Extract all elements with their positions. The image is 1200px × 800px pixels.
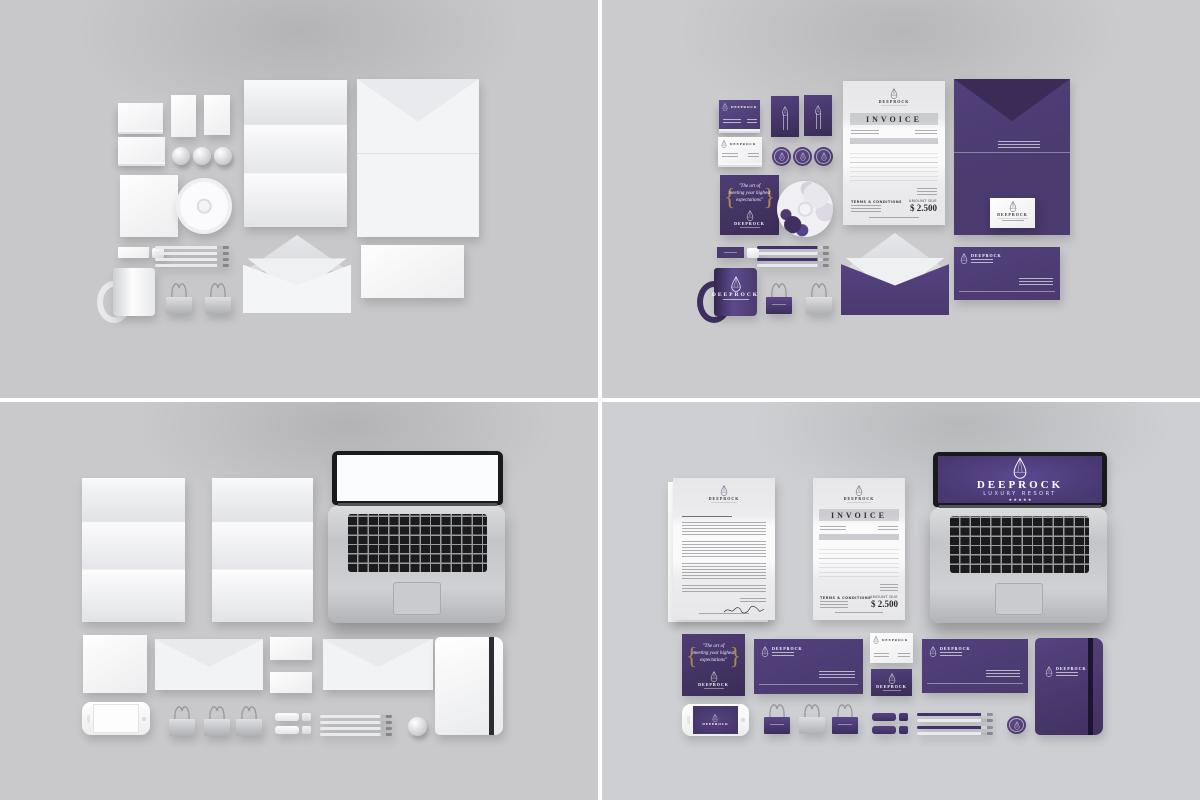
text-lines [820, 601, 848, 610]
gem-logo-icon [800, 152, 806, 161]
envelope-label: DEEPROCK [990, 198, 1035, 228]
binder-clip [166, 297, 192, 314]
binder-clip [832, 717, 858, 734]
brand-lockup: DEEPROCK LUXURY RESORT ★ ★ ★ ★ ★ [977, 457, 1063, 502]
mug [113, 268, 155, 316]
business-card [270, 637, 312, 660]
envelope-flap [323, 639, 433, 667]
laptop-display [337, 455, 498, 501]
dl-envelope: DEEPROCK [954, 247, 1060, 300]
divider-line [740, 227, 760, 228]
brand-lockup: DEEPROCK [990, 201, 1035, 223]
envelope-seam [954, 152, 1070, 153]
usb-cap [302, 726, 311, 734]
phone-earpiece [687, 716, 690, 724]
address-lines [1019, 278, 1053, 287]
usb-cap [302, 713, 311, 721]
dl-envelope: DEEPROCK [922, 639, 1028, 693]
text-lines [940, 652, 962, 657]
cd-disc [176, 178, 232, 234]
square-card [83, 635, 147, 693]
divider-line [959, 291, 1054, 292]
gem-logo-icon [960, 253, 968, 264]
brand-tagline: "The art ofmeeting your highestexpectati… [727, 183, 772, 204]
gem-logo-icon [720, 485, 728, 496]
binder-clip-wire-icon [168, 701, 196, 721]
brand-name: DEEPROCK [876, 684, 907, 689]
gem-logo-icon [1009, 201, 1017, 212]
divider-line [883, 690, 901, 691]
brand-name: DEEPROCK [940, 646, 971, 651]
round-sticker [814, 147, 833, 166]
terms-label: TERMS & CONDITIONS [851, 200, 902, 204]
vertical-text-line [820, 113, 821, 129]
notebook-band [1088, 638, 1093, 735]
pen [155, 246, 229, 249]
business-card-stack [118, 137, 165, 162]
binder-clip [204, 719, 230, 736]
pen [155, 252, 229, 255]
binder-clip [806, 297, 832, 314]
usb-cap [899, 713, 908, 721]
catalogue-envelope [357, 79, 479, 237]
invoice-total: $ 2.500 [871, 599, 898, 609]
gem-logo-icon [929, 646, 937, 657]
open-envelope [243, 235, 351, 313]
laptop-trackpad [995, 583, 1043, 615]
binder-clip-wire-icon [805, 278, 833, 298]
text-lines [851, 205, 881, 214]
dl-envelope [323, 639, 433, 690]
binder-clip [799, 717, 825, 734]
phone-home-button [741, 718, 745, 722]
sphere [193, 147, 211, 165]
brand-lockup: DEEPROCK [702, 714, 728, 726]
text-lines [748, 153, 759, 159]
phone [82, 702, 150, 735]
text-lines [722, 153, 738, 159]
business-card-stack: DEEPROCK [718, 137, 762, 163]
dl-envelope: DEEPROCK [754, 639, 863, 694]
envelope-seam [357, 153, 479, 154]
gem-logo-icon [1012, 457, 1028, 479]
invoice-total: $ 2.500 [910, 203, 937, 213]
quote-card: { } "The art ofmeeting your highestexpec… [720, 175, 779, 235]
brand-lockup: DEEPROCK [721, 140, 756, 148]
laptop-keyboard [950, 516, 1089, 573]
mug: DEEPROCK [714, 268, 757, 316]
brand-name: DEEPROCK [882, 638, 908, 642]
invoice-table-rows [850, 149, 938, 185]
gem-logo-icon [1045, 666, 1053, 677]
invoice-sheet: DEEPROCK INVOICE TERMS & CONDITIONS AMOU… [813, 478, 905, 620]
cd-sleeve [120, 175, 178, 237]
laptop-keyboard [348, 514, 487, 572]
brand-lockup: DEEPROCK [871, 673, 912, 691]
pen [917, 719, 993, 722]
cd-disc [777, 181, 833, 237]
brand-name: DEEPROCK [772, 646, 803, 651]
text-lines [915, 130, 937, 135]
brand-name: DEEPROCK [698, 682, 729, 687]
gem-logo-icon [761, 646, 769, 657]
brand-lockup: DEEPROCK [720, 210, 779, 228]
logo-card: DEEPROCK [871, 669, 912, 696]
text-lines [1002, 220, 1024, 223]
dl-envelope [155, 639, 263, 690]
envelope-flap [357, 79, 479, 122]
notebook [435, 637, 503, 735]
address-lines [819, 671, 855, 680]
paragraph-lines [682, 522, 766, 537]
laptop-trackpad [393, 582, 441, 615]
brand-name: DEEPROCK [712, 292, 759, 298]
invoice-subtotals [917, 188, 937, 197]
quote-card: { } "The art ofmeeting your highestexpec… [682, 634, 745, 696]
laptop-body [328, 506, 505, 623]
usb-cap [899, 726, 908, 734]
footer-line [835, 612, 883, 615]
sphere [172, 147, 190, 165]
text-lines [723, 299, 749, 302]
laptop-screen [332, 451, 503, 505]
brand-stars: ★ ★ ★ ★ ★ [1008, 497, 1031, 502]
brand-name: DEEPROCK [1056, 666, 1087, 671]
gem-logo-icon [873, 636, 879, 644]
pen [320, 733, 392, 736]
vertical-card [771, 96, 799, 137]
laptop-body [930, 508, 1107, 623]
divider-line [759, 684, 857, 685]
text-lines [838, 724, 852, 725]
gem-logo-icon [855, 485, 863, 496]
invoice-title: INVOICE [819, 509, 898, 521]
phone-screen [93, 704, 139, 733]
notebook: DEEPROCK [1035, 638, 1103, 735]
invoice-bill-row [819, 534, 898, 540]
mockup-grid: DEEPROCK DEEPROCK { } [0, 0, 1200, 800]
divider-line [847, 502, 871, 503]
binder-clip [205, 297, 231, 314]
invoice-bill-row [850, 138, 938, 144]
brand-name: DEEPROCK [702, 722, 728, 726]
cd-hub [197, 199, 212, 214]
text-lines [747, 119, 757, 125]
gem-logo-icon [890, 88, 898, 99]
divider-line [881, 105, 907, 106]
brand-name: DEEPROCK [709, 496, 740, 501]
gem-logo-icon [730, 276, 742, 292]
binder-clip [766, 297, 792, 314]
vertical-text-line [783, 114, 784, 130]
binder-clip-wire-icon [235, 701, 263, 721]
brand-tagline: "The art ofmeeting your highestexpectati… [690, 643, 738, 664]
pen [757, 252, 829, 255]
envelope-flap [954, 79, 1070, 121]
brand-name: DEEPROCK [977, 479, 1063, 491]
binder-clip-wire-icon [204, 278, 232, 298]
pen [320, 721, 392, 724]
footer-line [699, 613, 749, 616]
paragraph-lines [682, 541, 766, 559]
pen [757, 258, 829, 261]
usb-drive [872, 713, 896, 721]
text-lines [772, 304, 786, 305]
pen [917, 726, 993, 729]
text-lines [724, 252, 737, 253]
invoice-title: INVOICE [850, 113, 938, 125]
brand-name: DEEPROCK [879, 99, 910, 104]
brand-name: DEEPROCK [971, 253, 1002, 258]
photo-branded-stationery-laptop: DEEPROCK DEEPROCK INVOICE [602, 402, 1200, 800]
brand-lockup: DEEPROCK [714, 276, 757, 302]
footer-line [869, 217, 919, 220]
pen [320, 715, 392, 718]
divider-line [711, 502, 737, 503]
pen [917, 732, 993, 735]
gem-logo-icon [888, 673, 896, 684]
salutation-line [682, 516, 732, 519]
phone-earpiece [87, 715, 90, 723]
vertical-text-line [816, 113, 817, 129]
brand-lockup: DEEPROCK [1045, 666, 1087, 677]
text-lines [820, 526, 846, 531]
brand-lockup: DEEPROCK [673, 485, 775, 503]
gem-logo-icon [779, 152, 785, 161]
binder-clip [764, 717, 790, 734]
letterhead-blank [212, 478, 313, 622]
usb-drive [275, 713, 299, 721]
sphere [214, 147, 232, 165]
gem-logo-icon [710, 671, 718, 682]
brand-lockup: DEEPROCK [682, 671, 745, 689]
address-lines [986, 670, 1020, 679]
business-card [270, 672, 312, 693]
round-sticker [1007, 716, 1026, 734]
divider-line [998, 218, 1028, 219]
sphere [408, 717, 427, 736]
gem-logo-icon [746, 210, 754, 221]
text-lines [898, 653, 910, 659]
brand-lockup: DEEPROCK [761, 646, 803, 657]
gem-logo-icon [712, 714, 718, 722]
open-envelope [841, 233, 949, 315]
pen [320, 727, 392, 730]
laptop-screen: DEEPROCK LUXURY RESORT ★ ★ ★ ★ ★ [933, 452, 1107, 507]
binder-clip [169, 719, 195, 736]
invoice-subtotals [880, 584, 898, 593]
paragraph-lines [682, 585, 766, 594]
text-lines [874, 653, 889, 659]
brand-lockup: DEEPROCK [722, 103, 757, 111]
brand-name: DEEPROCK [844, 496, 875, 501]
brand-name: DEEPROCK [730, 142, 756, 146]
business-card: DEEPROCK [870, 633, 913, 663]
invoice-table-rows [819, 545, 898, 581]
vertical-card [171, 95, 196, 137]
brand-lockup: DEEPROCK [873, 636, 908, 644]
brand-lockup: DEEPROCK [929, 646, 971, 657]
mini-card [118, 247, 149, 258]
binder-clip-wire-icon [798, 699, 826, 719]
terms-label: TERMS & CONDITIONS [820, 596, 871, 600]
paragraph-lines [682, 563, 766, 581]
text-lines [851, 130, 879, 135]
notebook-band [489, 637, 494, 735]
pen [155, 258, 229, 261]
pen [757, 264, 829, 267]
photo-branded-stationery: DEEPROCK DEEPROCK { } [602, 0, 1200, 398]
round-sticker [772, 147, 791, 166]
phone: DEEPROCK [682, 704, 749, 736]
divider-line [927, 683, 1022, 684]
signoff-lines [740, 598, 766, 604]
cd-hub [798, 202, 813, 217]
pen [757, 246, 829, 249]
letterhead: DEEPROCK [673, 478, 775, 620]
pen [917, 713, 993, 716]
usb-drive [275, 726, 299, 734]
letterhead-blank [244, 80, 347, 227]
laptop-display: DEEPROCK LUXURY RESORT ★ ★ ★ ★ ★ [938, 456, 1102, 503]
vertical-card [804, 95, 832, 136]
vertical-card [204, 95, 230, 135]
phone-screen: DEEPROCK [693, 706, 738, 734]
envelope-flap [155, 639, 263, 667]
brand-name: DEEPROCK [997, 212, 1028, 217]
brand-name: DEEPROCK [734, 221, 765, 226]
brand-lockup: DEEPROCK [960, 253, 1002, 264]
binder-clip-wire-icon [765, 278, 793, 298]
text-lines [770, 724, 784, 725]
mini-card [717, 247, 744, 258]
binder-clip-wire-icon [165, 278, 193, 298]
letterhead-blank [82, 478, 185, 622]
address-lines [998, 141, 1040, 150]
business-card-stack: DEEPROCK [719, 100, 760, 129]
round-sticker [793, 147, 812, 166]
vertical-text-line [787, 114, 788, 130]
business-card-stack [118, 103, 163, 130]
gem-logo-icon [821, 152, 827, 161]
text-lines [772, 652, 794, 657]
photo-blank-stationery [0, 0, 598, 398]
phone-home-button [142, 717, 146, 721]
text-lines [723, 119, 741, 125]
binder-clip [236, 719, 262, 736]
photo-blank-stationery-laptop [0, 402, 598, 800]
brand-lockup: DEEPROCK [813, 485, 905, 503]
text-lines [971, 259, 993, 264]
compliment-card [361, 245, 464, 298]
text-lines [878, 526, 898, 531]
brand-name: DEEPROCK [731, 105, 757, 109]
divider-line [704, 688, 724, 689]
gem-logo-icon [722, 103, 728, 111]
binder-clip-wire-icon [763, 699, 791, 719]
binder-clip-wire-icon [203, 701, 231, 721]
invoice-sheet: DEEPROCK INVOICE TERMS & CONDITIONS AMOU… [843, 81, 945, 225]
gem-logo-icon [721, 140, 727, 148]
binder-clip-wire-icon [831, 699, 859, 719]
text-lines [1056, 672, 1078, 677]
brand-lockup: DEEPROCK [843, 88, 945, 106]
gem-logo-icon [1014, 721, 1020, 730]
pen [155, 264, 229, 267]
usb-drive [872, 726, 896, 734]
